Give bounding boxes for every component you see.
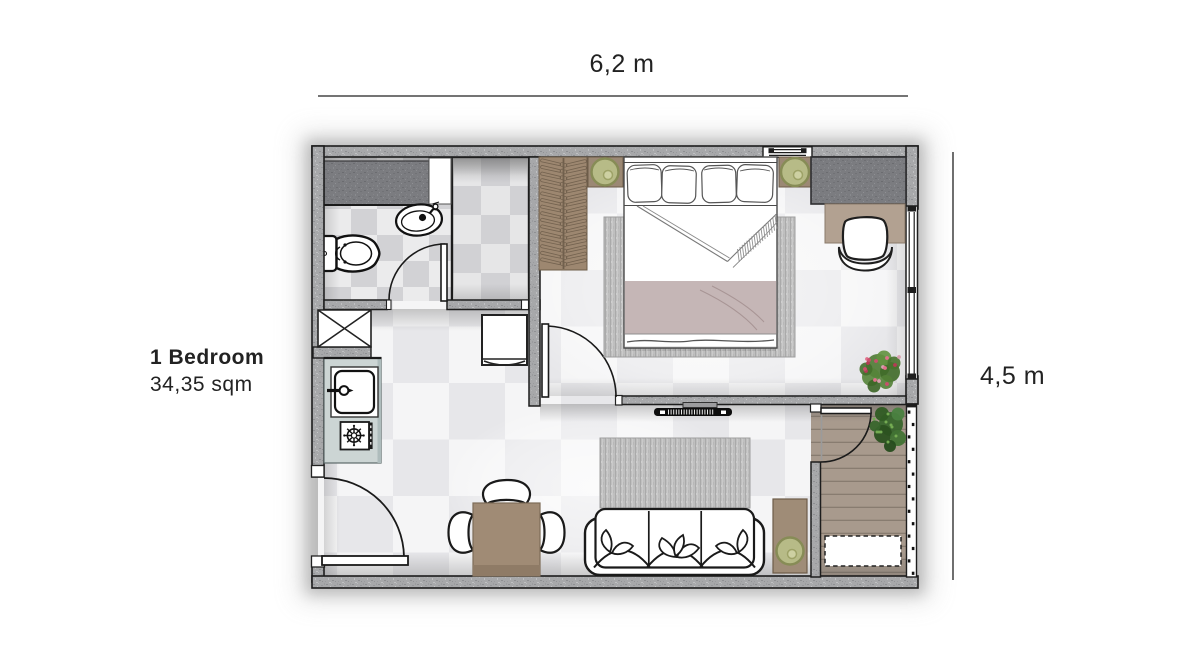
svg-text:6,2 m: 6,2 m — [589, 50, 654, 78]
svg-text:34,35 sqm: 34,35 sqm — [150, 373, 253, 396]
svg-text:1 Bedroom: 1 Bedroom — [150, 346, 264, 369]
svg-text:4,5 m: 4,5 m — [980, 362, 1045, 390]
